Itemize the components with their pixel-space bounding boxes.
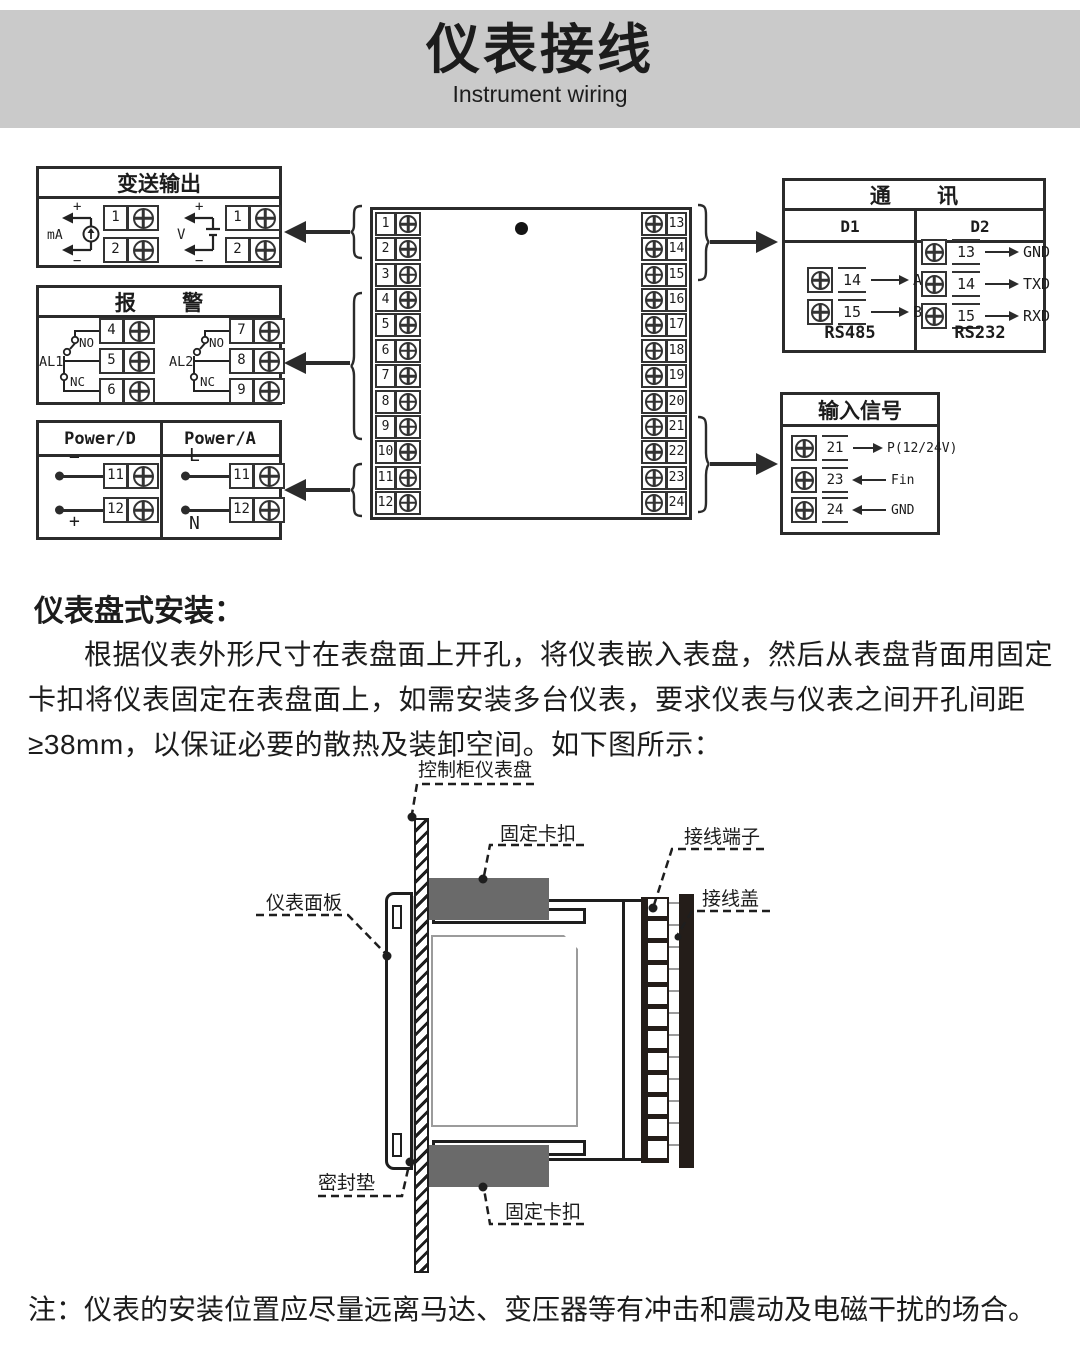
voltage-source-icon: + − V [169, 202, 225, 266]
rs232-caption: RS232 [917, 323, 1043, 343]
transmit-output-box: 变送输出 + − mA 1 2 + − V 1 2 [36, 166, 282, 268]
power-wire [183, 475, 229, 478]
screw-terminal-icon [249, 237, 281, 263]
transmit-v-terminals: 1 2 [225, 205, 281, 263]
terminal: 23 [641, 466, 687, 490]
body-connector-line [624, 1158, 641, 1161]
input-row: 21P(12/24V) [791, 435, 957, 461]
install-heading: 仪表盘式安装： [34, 586, 244, 630]
screw-terminal-icon [395, 466, 421, 490]
screw-terminal-icon [253, 318, 285, 344]
terminal: 8 [229, 348, 285, 374]
power-wire [183, 509, 229, 512]
terminal: 2 [225, 237, 281, 263]
input-signal-box: 输入信号 21P(12/24V) 23Fin 24GND [780, 392, 940, 535]
terminal: 15 [641, 263, 687, 287]
screw-terminal-icon [253, 497, 285, 523]
box-title: 变送输出 [39, 169, 279, 199]
screw-terminal-icon [395, 440, 421, 464]
screw-terminal-icon [921, 271, 947, 297]
power-d-header: Power/D [39, 423, 161, 457]
terminal-strip-right: 13 14 15 16 17 18 19 20 21 22 23 24 [641, 212, 687, 515]
terminal: 6 [375, 339, 421, 363]
svg-text:+: + [73, 202, 81, 215]
alarm-box: 报警 NO NC AL1 4 5 6 NO NC AL2 7 8 9 [36, 285, 282, 405]
screw-terminal-icon [253, 463, 285, 489]
screw-terminal-icon [123, 348, 155, 374]
cabinet-panel-bar [414, 818, 429, 1273]
svg-text:NC: NC [200, 374, 215, 389]
d2-header: D2 [917, 217, 1043, 236]
terminal: 4 [375, 288, 421, 312]
screw-terminal-icon [395, 491, 421, 515]
arrow-right-icon [853, 447, 873, 450]
page-title: 仪表接线 [0, 10, 1080, 79]
current-source-icon: + − mA [47, 202, 103, 266]
terminal: 6 [99, 378, 155, 404]
screw-terminal-icon [395, 263, 421, 287]
svg-text:AL1: AL1 [39, 354, 63, 370]
box-title: 输入信号 [783, 395, 937, 427]
terminal: 10 [375, 440, 421, 464]
terminal: 24 [641, 491, 687, 515]
terminal: 17 [641, 313, 687, 337]
terminal: 5 [99, 348, 155, 374]
terminal: 21 [641, 415, 687, 439]
faceplate-bezel [385, 892, 413, 1170]
terminal: 18 [641, 339, 687, 363]
mounting-hole-dot [515, 222, 528, 235]
terminal: 12 [103, 497, 159, 523]
page-banner: 仪表接线 Instrument wiring [0, 10, 1080, 128]
label-fixing-clip-bottom: 固定卡扣 [505, 1197, 581, 1224]
svg-text:AL2: AL2 [169, 354, 193, 370]
screw-terminal-icon [395, 364, 421, 388]
label-faceplate: 仪表面板 [266, 888, 342, 915]
box-title: 通讯 [785, 181, 1043, 211]
screw-terminal-icon [641, 415, 667, 439]
screw-terminal-icon [253, 378, 285, 404]
screw-terminal-icon [395, 288, 421, 312]
fixing-clip-bottom [429, 1145, 549, 1187]
terminal: 1 [375, 212, 421, 236]
screw-terminal-icon [641, 339, 667, 363]
terminal: 2 [375, 237, 421, 261]
body-connector-line [624, 899, 641, 902]
label-fixing-clip-top: 固定卡扣 [500, 819, 576, 846]
svg-text:−: − [73, 253, 81, 266]
label-wiring-cover: 接线盖 [702, 884, 759, 911]
screw-terminal-icon [641, 237, 667, 261]
svg-text:−: − [195, 253, 203, 266]
svg-text:+: + [195, 202, 203, 215]
screw-terminal-icon [807, 267, 833, 293]
screw-terminal-icon [127, 237, 159, 263]
input-row: 23Fin [791, 467, 914, 493]
power-wire [57, 509, 103, 512]
wiring-cover-bar [679, 894, 694, 1168]
transmit-ma-terminals: 1 2 [103, 205, 159, 263]
comm-row: 14A [807, 267, 922, 293]
power-a-header: Power/A [161, 423, 279, 457]
label-gasket: 密封垫 [318, 1168, 375, 1195]
screw-terminal-icon [395, 212, 421, 236]
screw-terminal-icon [127, 497, 159, 523]
bezel-slot [392, 1133, 402, 1157]
label-cabinet-panel: 控制柜仪表盘 [418, 755, 532, 782]
fixing-clip-top [429, 878, 549, 920]
arrow-left-icon [862, 479, 886, 482]
polarity-label: − [69, 447, 80, 468]
neutral-label: N [189, 513, 200, 534]
screw-terminal-icon [395, 415, 421, 439]
terminal: 16 [641, 288, 687, 312]
terminal: 13 [641, 212, 687, 236]
arrow-right-icon [871, 311, 899, 314]
screw-terminal-icon [395, 339, 421, 363]
comm-row: 14TXD [921, 271, 1050, 297]
screw-terminal-icon [921, 239, 947, 265]
screw-terminal-icon [127, 205, 159, 231]
comm-row: 13GND [921, 239, 1050, 265]
comm-row: 15B [807, 299, 922, 325]
terminal: 5 [375, 313, 421, 337]
screw-terminal-icon [641, 491, 667, 515]
svg-text:NO: NO [79, 335, 94, 350]
line-label: L [189, 445, 200, 466]
alarm-al2-terminals: 7 8 9 [229, 318, 285, 404]
arrow-left-icon [862, 509, 886, 512]
communication-box: 通讯 D1 D2 14A 15B RS485 13GND 14TXD 15RXD… [782, 178, 1046, 353]
arrow-right-icon [985, 251, 1009, 254]
terminal: 7 [375, 364, 421, 388]
power-a-terminals: 11 12 [229, 463, 285, 523]
terminal: 1 [103, 205, 159, 231]
screw-terminal-icon [641, 288, 667, 312]
screw-terminal-icon [395, 313, 421, 337]
screw-terminal-icon [791, 467, 817, 493]
rs485-caption: RS485 [785, 323, 915, 343]
screw-terminal-icon [395, 390, 421, 414]
terminal: 2 [103, 237, 159, 263]
terminal: 11 [103, 463, 159, 489]
box-title: 报警 [39, 288, 279, 318]
bezel-slot [392, 905, 402, 929]
relay-contact-icon: NO NC AL1 [39, 316, 99, 404]
terminal: 7 [229, 318, 285, 344]
terminal: 14 [641, 237, 687, 261]
polarity-label: + [69, 511, 80, 532]
power-box: Power/D Power/A − + 11 12 L N 11 12 [36, 420, 282, 540]
footer-note: 注：仪表的安装位置应尽量远离马达、变压器等有冲击和震动及电磁干扰的场合。 [28, 1288, 1036, 1328]
svg-text:NO: NO [209, 335, 224, 350]
terminal: 9 [229, 378, 285, 404]
screw-terminal-icon [253, 348, 285, 374]
terminal: 11 [375, 466, 421, 490]
screw-terminal-icon [641, 212, 667, 236]
terminal-strip-left: 1 2 3 4 5 6 7 8 9 10 11 12 [375, 212, 421, 515]
terminal: 11 [229, 463, 285, 489]
d1-header: D1 [785, 217, 915, 236]
arrow-right-icon [985, 315, 1009, 318]
power-wire [57, 475, 103, 478]
install-paragraph: 根据仪表外形尺寸在表盘面上开孔，将仪表嵌入表盘，然后从表盘背面用固定卡扣将仪表固… [28, 632, 1058, 767]
column-divider [160, 423, 163, 537]
arrow-right-icon [871, 279, 899, 282]
input-row: 24GND [791, 497, 914, 523]
terminal: 1 [225, 205, 281, 231]
screw-terminal-icon [791, 497, 817, 523]
svg-text:V: V [177, 227, 186, 243]
terminal: 4 [99, 318, 155, 344]
terminal: 20 [641, 390, 687, 414]
screw-terminal-icon [641, 466, 667, 490]
terminal: 12 [375, 491, 421, 515]
terminal: 19 [641, 364, 687, 388]
screw-terminal-icon [807, 299, 833, 325]
terminal: 9 [375, 415, 421, 439]
screw-terminal-icon [641, 313, 667, 337]
screw-terminal-icon [127, 463, 159, 489]
terminal: 3 [375, 263, 421, 287]
terminal: 12 [229, 497, 285, 523]
screw-terminal-icon [641, 263, 667, 287]
screw-terminal-icon [641, 390, 667, 414]
screw-terminal-icon [791, 435, 817, 461]
page-subtitle: Instrument wiring [0, 81, 1080, 108]
screw-terminal-icon [123, 378, 155, 404]
screw-terminal-icon [249, 205, 281, 231]
svg-text:NC: NC [70, 374, 85, 389]
label-terminal-block: 接线端子 [684, 822, 760, 849]
manual-page: 仪表接线 Instrument wiring 变送输出 + − mA 1 2 +… [0, 0, 1080, 1346]
svg-text:mA: mA [47, 228, 63, 243]
terminal-pin-lines [669, 902, 679, 1157]
terminal: 8 [375, 390, 421, 414]
screw-terminal-icon [641, 364, 667, 388]
screw-terminal-icon [641, 440, 667, 464]
terminal-block-ladder [641, 897, 669, 1163]
arrow-right-icon [710, 231, 778, 475]
arrow-right-icon [985, 283, 1009, 286]
relay-contact-icon: NO NC AL2 [169, 316, 229, 404]
power-d-terminals: 11 12 [103, 463, 159, 523]
screw-terminal-icon [395, 237, 421, 261]
instrument-inner-panel [431, 935, 578, 1127]
alarm-al1-terminals: 4 5 6 [99, 318, 155, 404]
arrow-left-icon [284, 221, 350, 501]
screw-terminal-icon [123, 318, 155, 344]
terminal: 22 [641, 440, 687, 464]
